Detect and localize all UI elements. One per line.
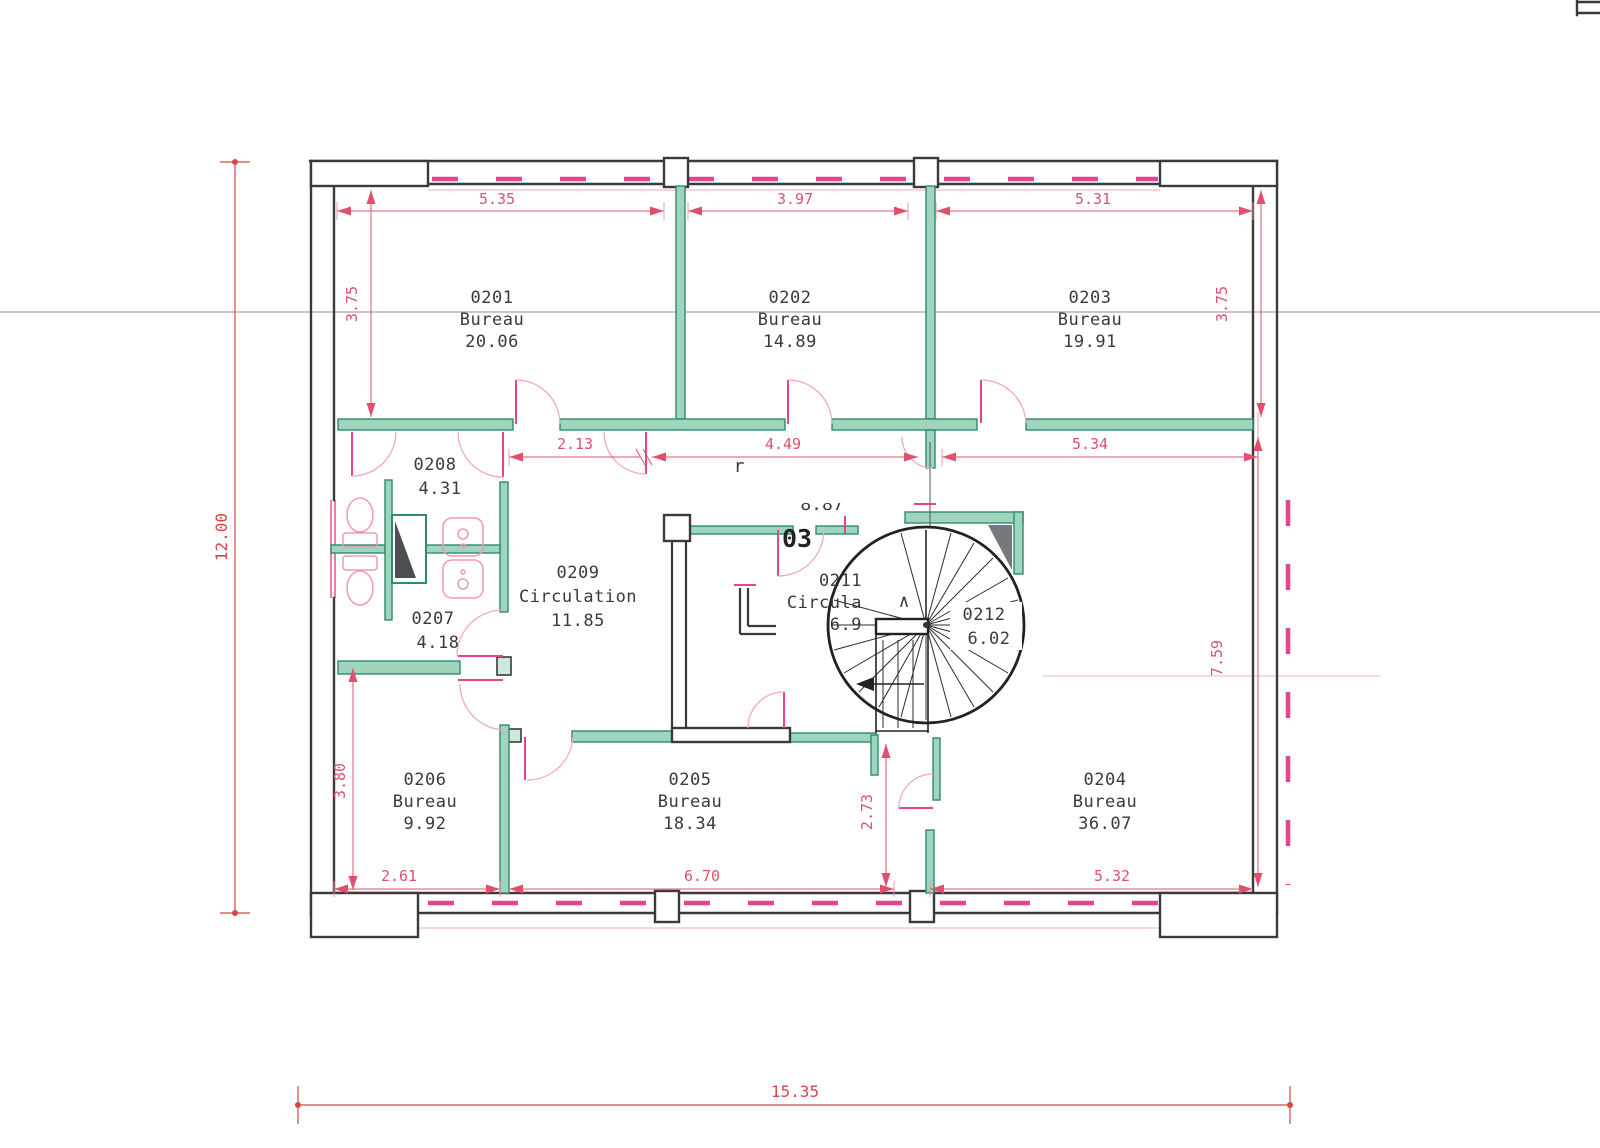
room-label-0202: 0202 Bureau 14.89	[758, 288, 822, 352]
room-label-0205: 0205 Bureau 18.34	[658, 770, 722, 834]
room-label-0208: 0208 4.31	[414, 455, 462, 499]
dim-bottom-3: 5.32	[1094, 867, 1130, 885]
room-0205-type: Bureau	[658, 792, 722, 812]
room-0206-type: Bureau	[393, 792, 457, 812]
post-bottom-1	[655, 891, 679, 922]
room-0208-area: 4.31	[419, 479, 462, 499]
room-0207-area: 4.18	[417, 633, 460, 653]
text-fragment-r: r	[734, 456, 745, 477]
post-top-1	[664, 158, 688, 187]
room-0201-number: 0201	[471, 288, 514, 308]
room-0206-number: 0206	[404, 770, 447, 790]
room-0205-area: 18.34	[663, 814, 717, 834]
dim-759: 7.59	[1208, 640, 1226, 676]
dim-mid-1: 2.13	[557, 435, 593, 453]
dim-top-2: 3.97	[777, 190, 813, 208]
room-0206-area: 9.92	[404, 814, 447, 834]
corner-pier-top-right	[1160, 161, 1277, 186]
room-0201-type: Bureau	[460, 310, 524, 330]
door-0201	[516, 380, 560, 424]
lift-frame	[734, 585, 776, 634]
interior-black-walls	[392, 442, 1012, 742]
dimensions: 5.35 3.97 5.31 3.75 3.75 2.13 4.49	[212, 159, 1293, 1124]
room-0203-area: 19.91	[1063, 332, 1117, 352]
wc-icon	[347, 498, 373, 532]
dim-375-left: 3.75	[343, 286, 361, 322]
room-0212-number: 0212	[963, 605, 1006, 625]
dim-mid-3: 5.34	[1072, 435, 1108, 453]
room-label-0209: 0209 Circulation 11.85	[519, 563, 637, 631]
room-0204-area: 36.07	[1078, 814, 1132, 834]
room-0208-number: 0208	[414, 455, 457, 475]
corner-pier-top-left	[311, 161, 428, 186]
room-0209-number: 0209	[557, 563, 600, 583]
room-0209-area: 11.85	[551, 611, 605, 631]
doors	[352, 380, 1026, 808]
dim-overall-height: 12.00	[212, 513, 231, 561]
level-badge: 03	[782, 524, 812, 553]
door-0203	[981, 380, 1026, 423]
lobby-post	[664, 515, 690, 541]
room-label-0206: 0206 Bureau 9.92	[393, 770, 457, 834]
corner-pier-bottom-right	[1160, 893, 1277, 937]
floor-plan-drawing: 5.35 3.97 5.31 3.75 3.75 2.13 4.49	[0, 0, 1600, 1148]
dim-bottom-2: 6.70	[684, 867, 720, 885]
post-top-2	[914, 158, 938, 187]
stair-newel	[923, 622, 929, 628]
door-0208-left	[352, 432, 396, 476]
room-0204-type: Bureau	[1073, 792, 1137, 812]
dim-upper-right: 3.75	[1213, 190, 1266, 417]
door-lobby-south	[748, 692, 784, 728]
dim-top-3: 5.31	[1075, 190, 1111, 208]
room-0202-number: 0202	[769, 288, 812, 308]
white-blob-overlay	[785, 485, 861, 503]
dim-overall-width: 15.35	[295, 1082, 1293, 1124]
floor-plan-page: 5.35 3.97 5.31 3.75 3.75 2.13 4.49	[0, 0, 1600, 1148]
corner-pier-bottom-left	[311, 893, 418, 937]
stair-corner-shade	[988, 525, 1012, 570]
stair-caret: ∧	[899, 591, 910, 612]
room-0203-number: 0203	[1069, 288, 1112, 308]
room-0211-number: 0211	[819, 571, 862, 591]
room-label-0201: 0201 Bureau 20.06	[460, 288, 524, 352]
room-label-0212: 0212 6.02	[950, 602, 1022, 650]
room-label-0211: 0211 Circula 6.9	[787, 571, 862, 635]
dim-upper-left: 3.75	[343, 190, 376, 417]
dim-375-right: 3.75	[1213, 286, 1231, 322]
door-0208-right	[458, 432, 503, 477]
room-0209-type: Circulation	[519, 587, 637, 607]
door-0207	[457, 610, 503, 656]
dim-lower-right: 7.59	[1208, 437, 1263, 887]
room-0203-type: Bureau	[1058, 310, 1122, 330]
dim-top-1: 5.35	[479, 190, 515, 208]
dim-overall-height: 12.00	[212, 159, 250, 916]
room-label-0203: 0203 Bureau 19.91	[1058, 288, 1122, 352]
dim-380: 3.80	[331, 763, 349, 799]
dim-row-top: 5.35 3.97 5.31	[337, 190, 1253, 220]
dim-overall-width: 15.35	[771, 1082, 819, 1101]
dim-273: 2.73	[858, 794, 876, 830]
room-0201-area: 20.06	[465, 332, 519, 352]
room-0202-area: 14.89	[763, 332, 817, 352]
dim-bottom-1: 2.61	[381, 867, 417, 885]
door-0205	[525, 737, 573, 780]
room-0207-number: 0207	[412, 609, 455, 629]
wc-icon	[347, 571, 373, 605]
room-0211-type: Circula	[787, 593, 862, 613]
door-0202	[788, 380, 832, 424]
room-0205-number: 0205	[669, 770, 712, 790]
door-corridor-top	[604, 432, 646, 474]
room-0204-number: 0204	[1084, 770, 1127, 790]
room-label-0207: 0207 4.18	[412, 609, 460, 653]
duct-shaft	[392, 515, 426, 583]
dim-mid-2: 4.49	[765, 435, 801, 453]
room-label-0204: 0204 Bureau 36.07	[1073, 770, 1137, 834]
stair-direction-arrow	[856, 677, 924, 691]
room-0202-type: Bureau	[758, 310, 822, 330]
room-0211-area: 6.9	[830, 615, 862, 635]
corner-artifact	[1577, 0, 1600, 15]
door-0204	[899, 774, 933, 808]
room-0212-area: 6.02	[968, 629, 1011, 649]
